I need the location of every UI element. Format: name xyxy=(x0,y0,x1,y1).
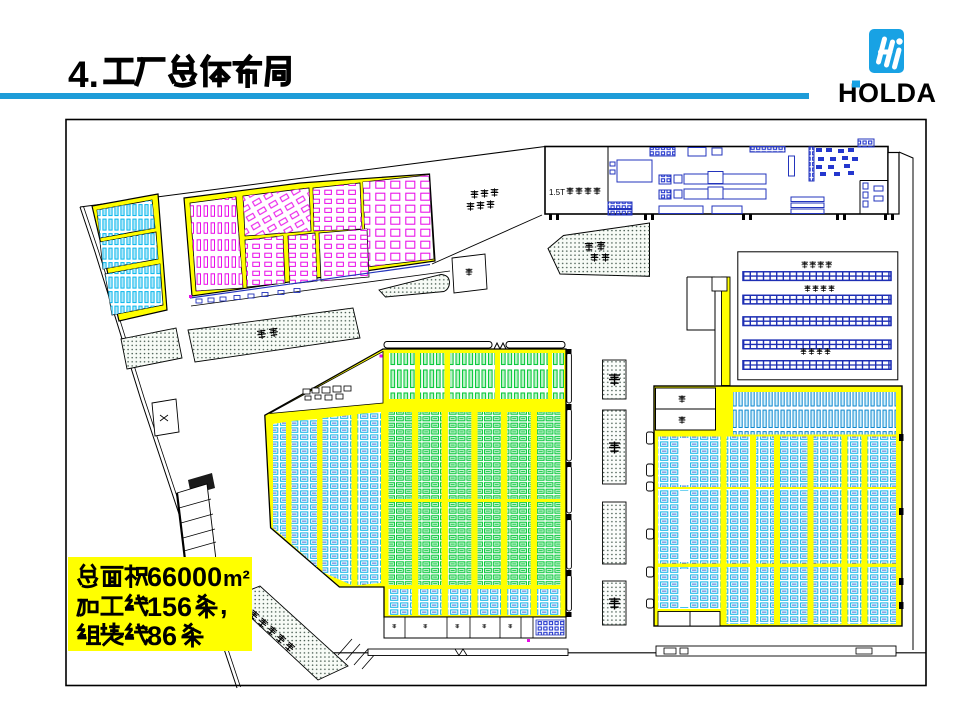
svg-text:1.5T: 1.5T xyxy=(549,188,565,197)
svg-text:66000: 66000 xyxy=(147,562,222,592)
svg-text:m²: m² xyxy=(223,566,250,591)
svg-text:86: 86 xyxy=(147,621,177,651)
svg-text:156: 156 xyxy=(147,592,192,622)
svg-text:,: , xyxy=(220,590,228,620)
svg-text:4.: 4. xyxy=(68,54,99,95)
